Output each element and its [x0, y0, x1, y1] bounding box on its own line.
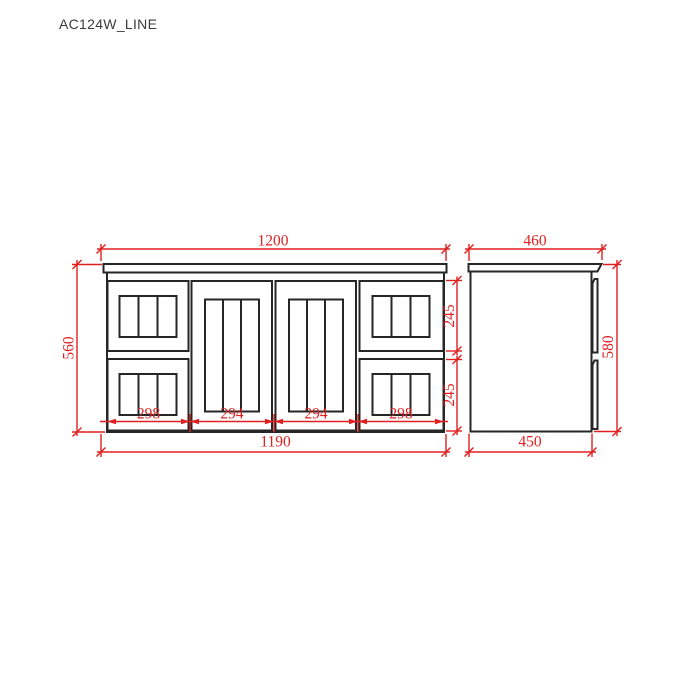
dim-label-side-right-height: 580	[600, 335, 617, 359]
dim-side-top-width: 460	[465, 233, 607, 262]
drawer-panel	[120, 296, 177, 337]
dim-label-segment-4: 298	[389, 406, 413, 423]
dim-front-top-width: 1200	[97, 233, 451, 262]
dim-label-segment-2: 294	[220, 406, 244, 423]
dim-front-left-height: 560	[61, 260, 106, 437]
dim-label-front-top-width: 1200	[258, 233, 289, 250]
drawing-canvas: 1200 560	[0, 0, 700, 700]
door-panel	[289, 300, 343, 412]
dim-label-front-left-height: 560	[61, 336, 78, 360]
dim-label-right-top-height: 245	[441, 304, 458, 328]
countertop-side	[469, 264, 602, 272]
cabinet-body-side	[471, 272, 592, 432]
dim-label-segment-3: 294	[304, 406, 328, 423]
dim-label-right-bottom-height: 245	[441, 383, 458, 407]
dim-side-bottom-width: 450	[465, 434, 597, 458]
dim-label-side-top-width: 460	[523, 233, 547, 250]
drawing-page: AC124W_LINE	[0, 0, 700, 700]
dim-front-segments: 298 294 294 298	[100, 406, 448, 433]
front-view: 1200 560	[61, 233, 463, 458]
dim-front-bottom-width: 1190	[97, 434, 451, 458]
countertop-front	[104, 264, 447, 273]
dim-label-front-bottom-width: 1190	[260, 434, 291, 451]
dim-label-segment-1: 298	[137, 406, 161, 423]
door-profile-upper	[593, 279, 598, 353]
drawer-panel	[373, 296, 430, 337]
door-profile-lower	[593, 361, 598, 430]
door-panel	[205, 300, 259, 412]
side-view: 460 580 450	[465, 233, 622, 458]
dim-label-side-bottom-width: 450	[518, 434, 542, 451]
